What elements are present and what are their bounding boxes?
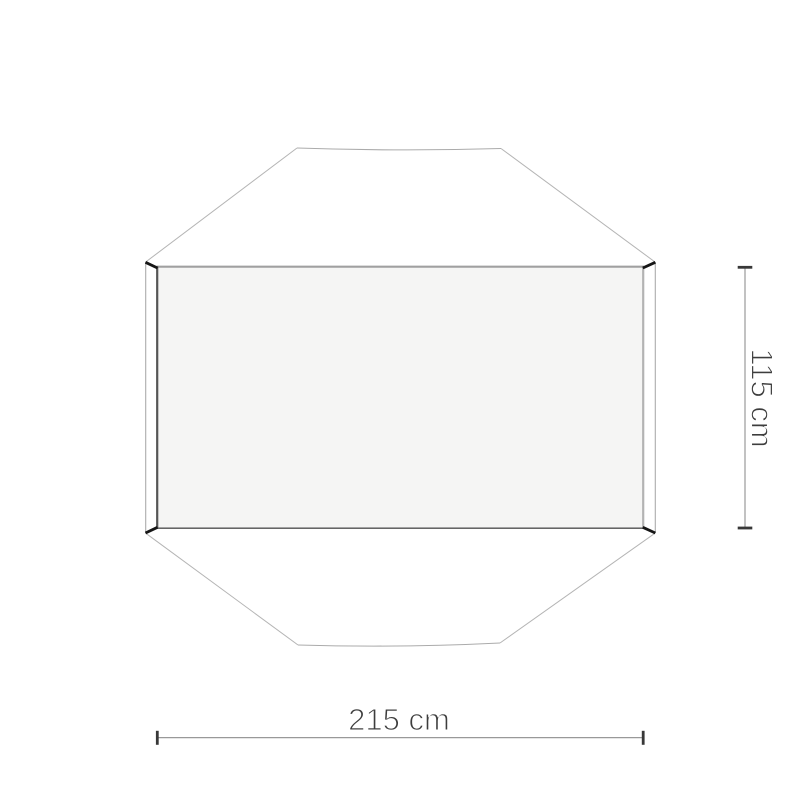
svg-text:215 cm: 215 cm	[348, 702, 450, 737]
svg-text:115 cm: 115 cm	[745, 348, 780, 447]
